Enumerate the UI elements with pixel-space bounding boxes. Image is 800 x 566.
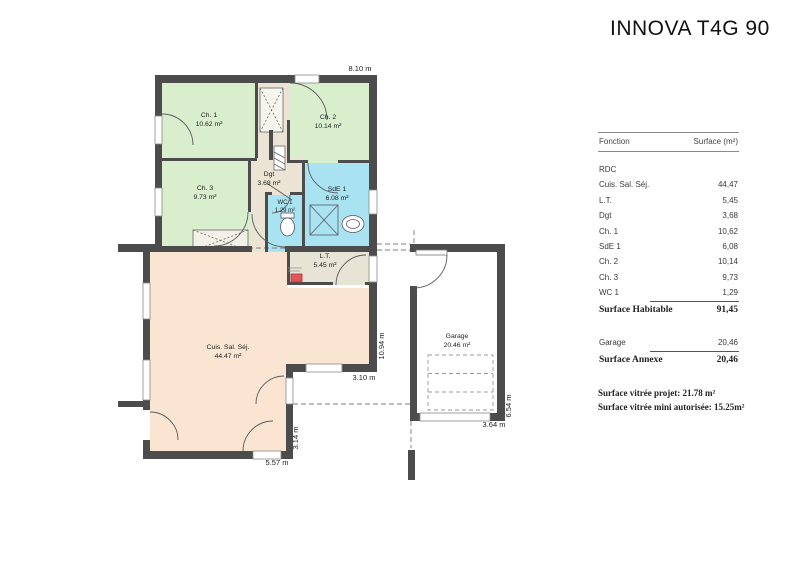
total-divider <box>650 301 739 302</box>
label-sde1-area: 6.08 m² <box>325 195 349 202</box>
label-ch3-name: Ch. 3 <box>197 185 213 192</box>
page: Ch. 1 10.62 m² Ch. 2 10.14 m² Ch. 3 9.73… <box>0 0 800 566</box>
table-level: RDC <box>598 165 739 174</box>
window-living-1 <box>143 283 150 319</box>
table-row-garage: Garage20,46 <box>598 338 739 347</box>
window-living-2 <box>143 360 150 400</box>
annex-divider <box>650 351 739 352</box>
label-cuis-area: 44.47 m² <box>215 353 243 360</box>
glazing-note-minimum: Surface vitrée mini autorisée: 15.25m² <box>598 400 763 414</box>
sink-icon <box>342 216 364 233</box>
window-lt <box>369 256 377 282</box>
label-ch1-area: 10.62 m² <box>196 121 224 128</box>
entry-door-opening <box>143 410 150 440</box>
table-row: Ch. 39,73 <box>598 273 739 282</box>
surface-annexe-row: Surface Annexe20,46 <box>598 355 739 365</box>
window-sde <box>369 190 377 214</box>
glazing-note-project: Surface vitrée projet: 21.78 m² <box>598 386 763 400</box>
table-header: Fonction Surface (m²) <box>598 132 739 152</box>
label-dgt-area: 3.68 m² <box>257 180 281 187</box>
label-cuis-name: Cuis. Sal. Séj. <box>207 344 250 351</box>
dim-top: 8.10 m <box>349 64 372 73</box>
table-header-surface: Surface (m²) <box>694 137 738 146</box>
dim-bottom: 5.57 m <box>266 458 289 467</box>
label-dgt-name: Dgt <box>264 171 275 178</box>
toilet-icon <box>281 213 295 236</box>
table-row: L.T.5,45 <box>598 196 739 205</box>
window-ch1 <box>155 116 162 144</box>
table-row: Cuis. Sal. Séj.44,47 <box>598 180 739 189</box>
label-ch3-area: 9.73 m² <box>193 194 217 201</box>
label-garage-area: 20.46 m² <box>444 342 472 349</box>
table-header-function: Fonction <box>599 137 630 146</box>
hall-door-leaf <box>274 146 285 170</box>
label-wc1-name: WC 1 <box>278 200 294 206</box>
label-wc1-area: 1.29 m² <box>275 208 295 214</box>
garage-door-leaf <box>416 250 447 255</box>
closet-top <box>260 88 283 132</box>
table-row: SdE 16,08 <box>598 242 739 251</box>
label-ch2-name: Ch. 2 <box>320 114 336 121</box>
garage-side-door-opening <box>410 252 417 286</box>
label-garage-name: Garage <box>446 333 469 340</box>
label-ch1-name: Ch. 1 <box>201 112 217 119</box>
room-sde1 <box>305 163 370 252</box>
window-top <box>295 75 319 83</box>
page-title: INNOVA T4G 90 <box>610 17 770 41</box>
table-row: Ch. 110,62 <box>598 227 739 236</box>
dim-garage-w: 3.64 m <box>483 420 506 429</box>
dim-right: 10.94 m <box>377 332 386 359</box>
label-sde1-name: SdE 1 <box>328 186 347 193</box>
label-lt-name: L.T. <box>320 253 331 260</box>
glazing-notes: Surface vitrée projet: 21.78 m² Surface … <box>598 386 763 414</box>
dim-step-v: 3.14 m <box>291 427 300 450</box>
surface-table: Fonction Surface (m²) RDC Cuis. Sal. Séj… <box>598 132 739 414</box>
table-row: Dgt3,68 <box>598 211 739 220</box>
dim-garage-h: 6.54 m <box>504 395 513 418</box>
window-step-h <box>306 364 342 372</box>
dim-step: 3.10 m <box>353 373 376 382</box>
surface-habitable-row: Surface Habitable91,45 <box>598 305 739 315</box>
table-row: WC 11,29 <box>598 288 739 297</box>
window-step-v <box>286 378 293 404</box>
label-ch2-area: 10.14 m² <box>315 123 343 130</box>
garage-door-opening <box>420 413 490 421</box>
table-row: Ch. 210,14 <box>598 257 739 266</box>
window-ch3 <box>155 188 162 216</box>
label-lt-area: 5.45 m² <box>313 262 337 269</box>
